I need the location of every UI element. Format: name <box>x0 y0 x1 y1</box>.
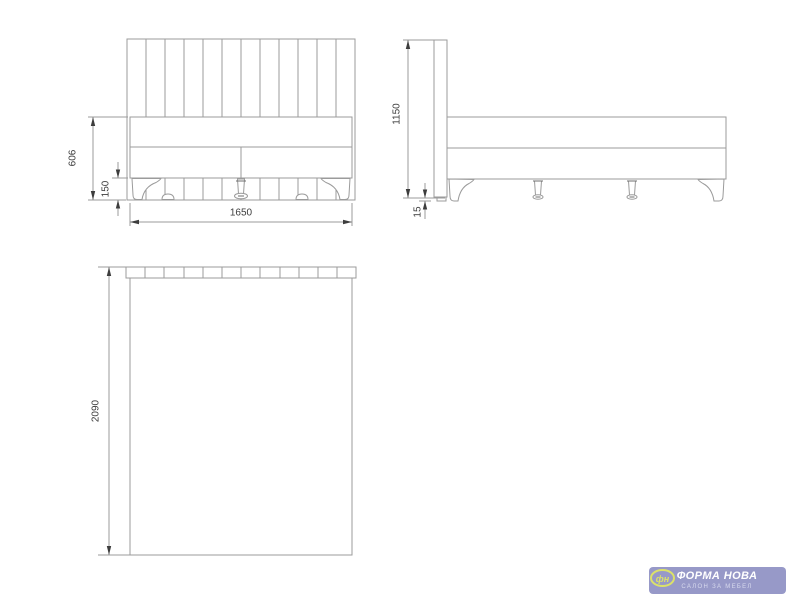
side-dim-15-label: 15 <box>413 206 424 218</box>
brand-logo: фн ФОРМА НОВА САЛОН ЗА МЕБЕЛ <box>649 567 786 594</box>
front-dim-1650-label: 1650 <box>230 208 253 219</box>
technical-drawing: 606 150 1650 <box>0 0 800 600</box>
drawing-page: 606 150 1650 <box>0 0 800 600</box>
side-mid-leg-2 <box>627 181 637 199</box>
side-dim-15: 15 <box>413 183 432 219</box>
front-dim-150: 150 <box>101 162 129 216</box>
side-mid-leg-1 <box>533 181 543 199</box>
front-dim-606-label: 606 <box>68 149 79 166</box>
top-bed-outline <box>130 278 352 555</box>
monogram-letters: фн <box>656 574 670 584</box>
top-view: 2090 <box>91 267 357 555</box>
side-dim-1150-label: 1150 <box>392 103 403 125</box>
front-dim-1650: 1650 <box>130 203 352 226</box>
top-dim-2090-label: 2090 <box>91 399 102 422</box>
front-glide-left <box>162 194 174 200</box>
forma-nova-monogram-icon: фн <box>649 567 677 589</box>
front-dim-606: 606 <box>68 117 129 200</box>
side-left-leg <box>449 179 474 201</box>
front-glide-right <box>296 194 308 200</box>
side-headboard <box>434 40 447 197</box>
front-view: 606 150 1650 <box>68 39 356 226</box>
top-dim-2090: 2090 <box>91 267 131 555</box>
front-dim-150-label: 150 <box>101 180 112 197</box>
side-right-leg <box>698 179 724 201</box>
top-headboard-slats <box>145 267 337 278</box>
logo-title: ФОРМА НОВА <box>677 571 758 582</box>
side-view: 1150 15 <box>392 40 727 219</box>
logo-subtitle: САЛОН ЗА МЕБЕЛ <box>681 584 752 590</box>
